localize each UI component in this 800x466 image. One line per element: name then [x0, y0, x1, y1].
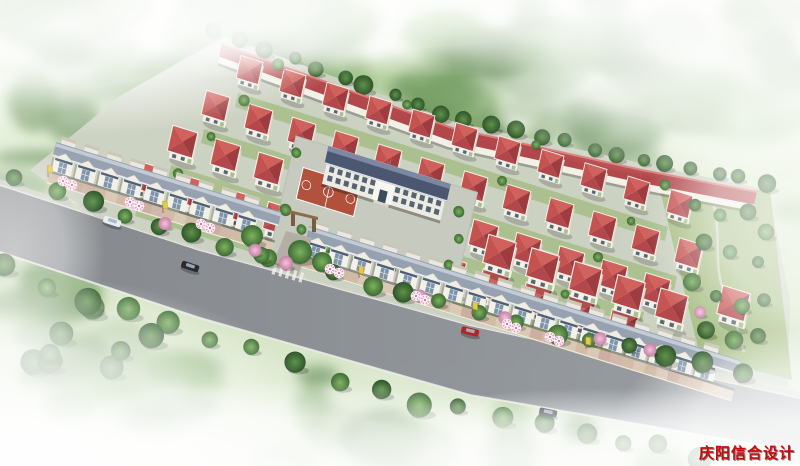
rendering-canvas: 庆阳信合设计	[0, 0, 800, 466]
watermark-text: 庆阳信合设计	[699, 442, 795, 463]
aerial-rendering	[0, 0, 800, 466]
white-vignette	[0, 0, 800, 466]
